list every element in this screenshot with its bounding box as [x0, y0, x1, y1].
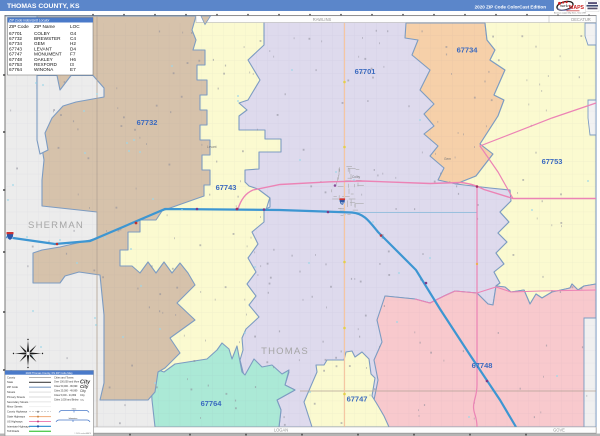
svg-text:Primary Streets: Primary Streets	[7, 395, 26, 399]
svg-text:miles: miles	[72, 409, 76, 411]
svg-text:State Highways: State Highways	[7, 415, 26, 419]
svg-text:ZIP Code Index/Grid Locator: ZIP Code Index/Grid Locator	[8, 19, 50, 23]
svg-text:County Highways: County Highways	[7, 410, 28, 414]
svg-text:THOMAS COUNTY, KS: THOMAS COUNTY, KS	[7, 3, 80, 10]
svg-text:© 2020 marketMAPS: © 2020 marketMAPS	[74, 432, 92, 435]
svg-text:67701: 67701	[355, 67, 376, 76]
svg-text:Streets: Streets	[7, 390, 16, 394]
svg-text:67747: 67747	[347, 395, 368, 404]
svg-text:Colby: Colby	[352, 175, 361, 179]
svg-text:67743: 67743	[216, 183, 237, 192]
svg-text:67764: 67764	[9, 67, 22, 72]
svg-text:67734: 67734	[457, 46, 479, 55]
svg-text:ZIP Name: ZIP Name	[34, 24, 55, 29]
svg-text:70: 70	[341, 201, 345, 205]
svg-text:ZIP Code: ZIP Code	[9, 24, 29, 29]
svg-text:City: City	[80, 393, 85, 397]
svg-text:US Highways: US Highways	[7, 419, 23, 423]
svg-text:LOGAN: LOGAN	[274, 428, 288, 433]
svg-text:Gem: Gem	[444, 157, 451, 161]
svg-text:America's Largest Map Store -: America's Largest Map Store - Since 1989	[554, 12, 586, 15]
svg-text:Secondary Streets: Secondary Streets	[7, 400, 29, 404]
svg-text:LOC: LOC	[70, 24, 80, 29]
svg-text:THOMAS: THOMAS	[261, 346, 309, 357]
svg-text:Toll Roads: Toll Roads	[7, 429, 20, 433]
svg-text:Over 100,000 and More: Over 100,000 and More	[54, 381, 80, 384]
svg-text:67732: 67732	[137, 118, 158, 127]
svg-text:Cities and Towns: Cities and Towns	[54, 375, 74, 379]
svg-text:2020 ZIP Code ColorCast Editio: 2020 ZIP Code ColorCast Edition	[475, 4, 547, 9]
svg-text:DECATUR: DECATUR	[571, 17, 591, 22]
svg-text:County: County	[7, 375, 16, 379]
svg-text:ZIP Code: ZIP Code	[7, 385, 18, 389]
svg-text:MAPS: MAPS	[569, 5, 585, 11]
svg-text:67748: 67748	[472, 361, 493, 370]
svg-text:kilometers: kilometers	[69, 417, 78, 420]
svg-text:67753: 67753	[542, 157, 563, 166]
svg-text:Interstate Highways: Interstate Highways	[7, 424, 30, 428]
svg-text:RAWLINS: RAWLINS	[313, 17, 332, 22]
svg-text:Levant: Levant	[207, 145, 217, 149]
svg-text:State: State	[7, 380, 14, 384]
svg-text:Minor Streets: Minor Streets	[7, 405, 23, 409]
svg-text:SHERMAN: SHERMAN	[28, 220, 84, 231]
svg-text:Cities 50,000 - 99,999: Cities 50,000 - 99,999	[54, 385, 78, 388]
svg-text:Cities 1,000 and Below: Cities 1,000 and Below	[54, 398, 79, 401]
svg-text:WINONA: WINONA	[34, 67, 54, 72]
svg-text:67764: 67764	[201, 399, 223, 408]
svg-text:2020 Thomas County, KS ZIP Cod: 2020 Thomas County, KS ZIP Code Map	[26, 371, 73, 375]
svg-text:Cities 25,000 - 49,999: Cities 25,000 - 49,999	[54, 390, 78, 393]
svg-text:E7: E7	[70, 67, 76, 72]
svg-text:Cities 5,000 - 24,999: Cities 5,000 - 24,999	[54, 394, 77, 397]
svg-text:GOVE: GOVE	[553, 428, 565, 433]
